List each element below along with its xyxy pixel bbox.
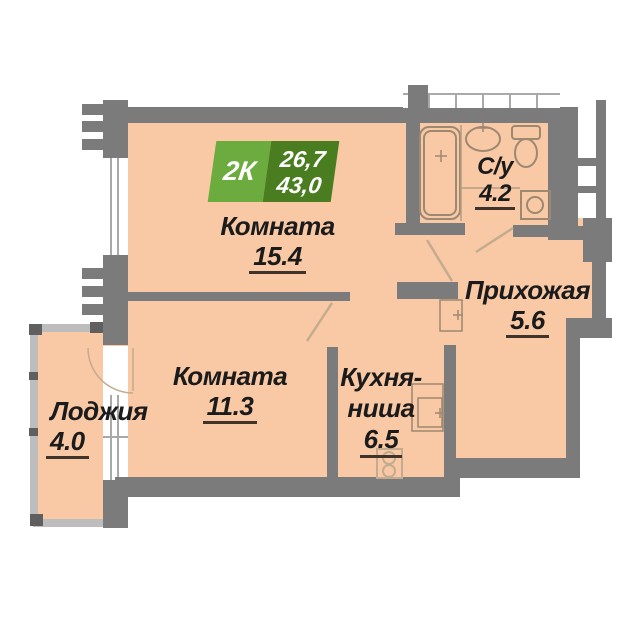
- wall-tooth: [82, 286, 103, 297]
- mask: [580, 330, 632, 480]
- room-name: Комната: [145, 361, 315, 391]
- room-area: 4.0: [46, 426, 89, 459]
- window-frame-line: [117, 158, 119, 255]
- wall-segment: [125, 292, 350, 301]
- mask: [108, 497, 632, 632]
- wall-segment: [397, 282, 458, 299]
- shaft-bar: [578, 186, 596, 193]
- room-name: Лоджия: [40, 396, 158, 426]
- apartment-type-badge: 2К: [208, 141, 272, 202]
- wall-tick: [90, 322, 103, 333]
- window-frame-line: [110, 158, 112, 255]
- wall-segment: [596, 100, 606, 228]
- apartment-badge: 2К 26,7 43,0: [208, 141, 340, 202]
- shaft-tick: [536, 93, 538, 108]
- room-label-loggia: Лоджия 4.0: [40, 396, 158, 459]
- wall-tooth: [82, 121, 103, 132]
- room-label-komnata-1: Комната 15.4: [190, 211, 365, 274]
- wall-segment: [513, 225, 551, 237]
- balcony-door-opening: [103, 346, 128, 395]
- room-label-bathroom: С/у 4.2: [455, 153, 535, 210]
- wall-tooth: [82, 139, 103, 150]
- wall-tooth: [82, 104, 103, 115]
- window: [103, 158, 128, 255]
- room-label-hallway: Прихожая 5.6: [450, 275, 605, 338]
- room-area: 4.2: [475, 180, 515, 210]
- wall-segment: [128, 107, 606, 123]
- wall-segment: [566, 338, 580, 478]
- wall-segment: [103, 100, 128, 158]
- wall-segment: [548, 120, 578, 228]
- wall-tooth: [82, 304, 103, 315]
- room-area: 11.3: [203, 391, 258, 424]
- room-label-kitchen: Кухня- ниша 6.5: [331, 362, 431, 458]
- wall-segment: [395, 223, 465, 235]
- wall-segment: [406, 123, 420, 233]
- shaft-tick: [428, 93, 430, 108]
- floor-plan: Комната 15.4 С/у 4.2 Прихожая 5.6 Комнат…: [0, 0, 632, 632]
- room-name: ниша: [331, 393, 431, 424]
- room-name: Прихожая: [450, 275, 605, 305]
- loggia-glazing: [33, 519, 103, 527]
- room-name: С/у: [455, 153, 535, 180]
- apartment-areas-badge: 26,7 43,0: [263, 141, 340, 202]
- wall-tick: [30, 514, 43, 526]
- wall-tick: [29, 428, 38, 436]
- room-area: 5.6: [506, 305, 549, 338]
- wall-tooth: [82, 268, 103, 279]
- room-area: 15.4: [249, 241, 306, 274]
- wall-stub: [408, 85, 428, 123]
- shaft-bar: [578, 158, 596, 166]
- shaft-tick: [509, 93, 511, 108]
- room-area: 6.5: [360, 424, 403, 458]
- room-name: Комната: [190, 211, 365, 241]
- shaft-tick: [455, 93, 457, 108]
- loggia-glazing: [30, 328, 38, 526]
- wall-tick: [29, 324, 42, 335]
- shaft-tick: [482, 93, 484, 108]
- wall-segment: [115, 477, 460, 497]
- room-name: Кухня-: [331, 362, 431, 393]
- living-area-value: 26,7: [279, 146, 327, 172]
- wall-tick: [29, 372, 38, 380]
- total-area-value: 43,0: [275, 172, 323, 198]
- wall-segment: [448, 458, 580, 478]
- mask: [460, 478, 632, 497]
- room-label-komnata-2: Комната 11.3: [145, 361, 315, 424]
